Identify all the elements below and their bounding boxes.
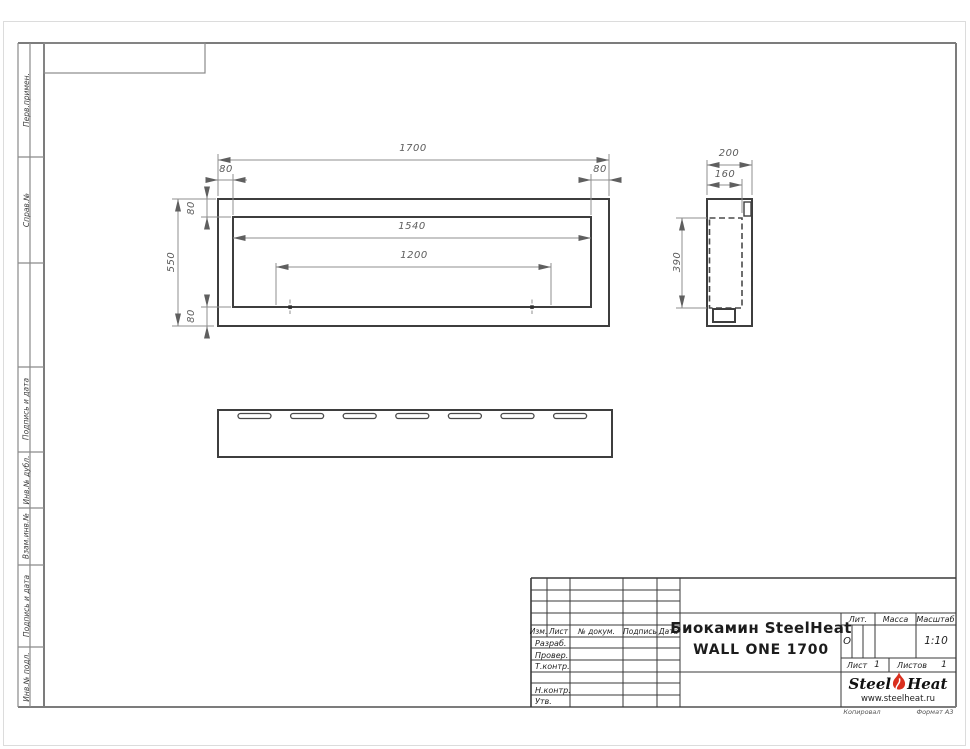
stamp-role-prover: Провер.: [532, 650, 580, 660]
stamp-col-dokum: № докум.: [570, 626, 623, 636]
dim-front-inner-width: 1540: [382, 220, 442, 232]
steelheat-logo: Steel Heat: [843, 673, 953, 693]
border-frame: [18, 43, 956, 707]
margin-label-perv-primen: Перв.примен.: [20, 43, 32, 157]
format-label: Формат А3: [912, 707, 958, 717]
flame-icon: [892, 672, 906, 694]
stamp-role-razrab: Разраб.: [532, 638, 580, 648]
dim-front-inset-left: 80: [213, 163, 239, 175]
dim-front-height: 550: [165, 242, 177, 282]
bottom-view: [218, 410, 612, 457]
stamp-lit-value: О: [841, 632, 853, 650]
stamp-col-list: Лист: [547, 626, 570, 636]
logo-steel-text: Steel: [849, 675, 892, 693]
stamp-title-line2: WALL ONE 1700: [682, 641, 840, 659]
stamp-role-tkontr: Т.контр.: [532, 661, 580, 671]
stamp-sheets-value: 1: [934, 659, 954, 671]
dim-front-inset-bottom: 80: [185, 296, 197, 336]
dim-side-inner-height: 390: [671, 242, 683, 282]
side-view: [676, 160, 752, 326]
margin-label-inv-dubl: Инв.№ дубл.: [20, 452, 32, 508]
front-view: [172, 154, 620, 334]
dim-front-holes-span: 1200: [383, 249, 445, 261]
stamp-role-utv: Утв.: [532, 696, 580, 706]
stamp-sheets-label: Листов: [890, 659, 934, 671]
margin-label-sprav-no: Справ.№: [20, 157, 32, 263]
stamp-col-izm: Изм.: [530, 626, 547, 636]
stamp-title-line1: Биокамин SteelHeat: [682, 617, 840, 639]
stamp-role-nkontr: Н.контр.: [532, 685, 580, 695]
stamp-scale-value: 1:10: [916, 633, 956, 649]
margin-label-podpis-data-1: Подпись и дата: [20, 367, 32, 452]
dim-side-depth: 200: [702, 147, 756, 159]
margin-label-podpis-data-2: Подпись и дата: [20, 565, 32, 647]
dim-front-inset-right: 80: [587, 163, 613, 175]
margin-label-inv-podl: Инв.№ подл.: [20, 647, 32, 707]
stamp-col-podpis: Подпись: [623, 626, 657, 636]
drawing-sheet: 1700 80 80 1540 1200 550 80 80 200 160 3…: [0, 0, 970, 749]
dim-front-width: 1700: [383, 142, 443, 154]
kopiroval-label: Копировал: [838, 707, 886, 717]
logo-url: www.steelheat.ru: [841, 693, 955, 705]
margin-label-vzam-inv: Взам.инв.№: [20, 508, 32, 565]
dim-front-inset-top: 80: [185, 188, 197, 228]
stamp-scale-label: Масштаб: [915, 614, 956, 624]
dim-side-inner-depth: 160: [701, 168, 749, 180]
stamp-mass-label: Масса: [875, 614, 916, 624]
stamp-lit-label: Лит.: [841, 614, 875, 624]
stamp-sheet-value: 1: [868, 659, 886, 671]
logo-heat-text: Heat: [907, 675, 947, 693]
